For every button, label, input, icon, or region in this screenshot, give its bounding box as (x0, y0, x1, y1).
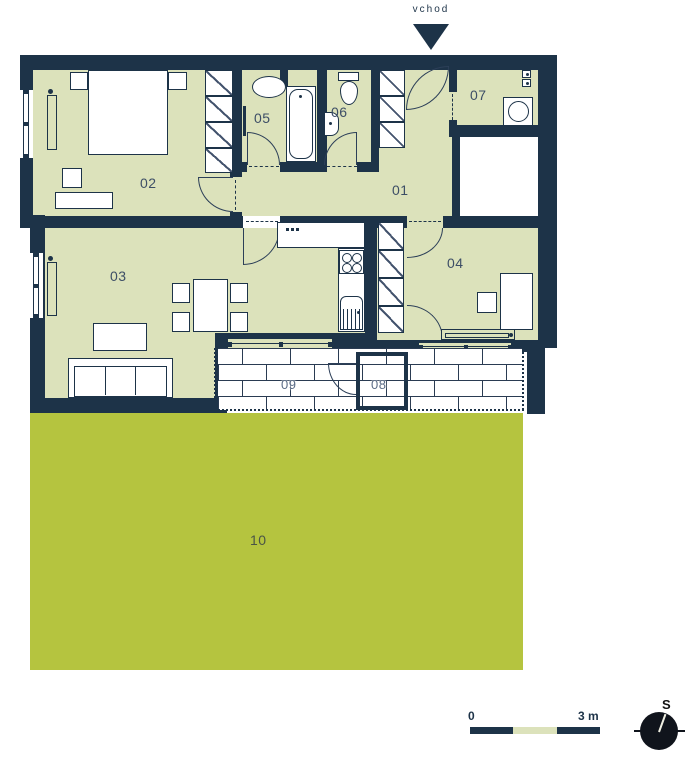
washbasin (252, 76, 286, 98)
wardrobe (379, 122, 405, 148)
wardrobe (205, 96, 233, 122)
entrance-door-threshold (406, 62, 449, 63)
toilet-tank (338, 72, 359, 81)
wardrobe (205, 122, 233, 148)
entrance-arrow-icon (413, 24, 449, 50)
radiator (47, 262, 57, 316)
room-label-10: 10 (250, 532, 267, 548)
wardrobe (379, 70, 405, 96)
wardrobe (378, 278, 404, 306)
kitchen-sink-unit (340, 296, 363, 330)
room-label-02: 02 (140, 175, 157, 191)
chair (230, 283, 248, 303)
terrace-border (214, 348, 216, 410)
sofa (68, 358, 173, 398)
scale-end-label: 3 m (578, 709, 599, 723)
door-threshold (452, 94, 453, 120)
wall (443, 216, 538, 228)
nightstand (168, 72, 187, 90)
door-threshold (249, 166, 279, 167)
adjacent-white-area (460, 137, 538, 216)
window (20, 90, 33, 158)
wall (20, 216, 243, 228)
wardrobe (378, 250, 404, 278)
utility-meter (522, 70, 531, 78)
room-label-01: 01 (392, 182, 409, 198)
wall (30, 398, 220, 413)
room-label-09: 09 (281, 377, 296, 392)
door-threshold (235, 180, 236, 210)
wall (527, 345, 545, 414)
washing-machine (503, 97, 533, 126)
chair (172, 283, 190, 303)
room-label-04: 04 (447, 255, 464, 271)
wall (452, 137, 460, 216)
chair (172, 312, 190, 332)
wall (449, 125, 538, 137)
garden (30, 413, 523, 670)
radiator-valve (48, 256, 53, 261)
towel-rail (243, 106, 246, 136)
room-label-08: 08 (371, 377, 386, 392)
wall (449, 55, 457, 92)
wardrobe (379, 96, 405, 122)
room-label-06: 06 (331, 104, 348, 120)
wardrobe (205, 70, 233, 96)
room-label-05: 05 (254, 110, 271, 126)
side-table (477, 292, 497, 313)
bathtub (286, 86, 316, 162)
room-label-03: 03 (110, 268, 127, 284)
radiator (47, 95, 57, 150)
scale-start-label: 0 (468, 709, 475, 723)
counter-detail (286, 228, 289, 231)
door-threshold (246, 221, 278, 222)
chair (230, 312, 248, 332)
wall (20, 55, 557, 70)
wall (230, 212, 242, 228)
chair (62, 168, 82, 188)
radiator-valve (48, 89, 53, 94)
wardrobe (378, 222, 404, 250)
door-threshold (409, 221, 441, 222)
room-label-07: 07 (470, 87, 487, 103)
desk (55, 192, 113, 209)
single-bed (500, 273, 533, 330)
nightstand (70, 72, 88, 90)
wall (371, 70, 379, 172)
stove (339, 250, 364, 274)
wall (280, 162, 327, 172)
terrace-border (522, 348, 524, 410)
kitchen-counter (277, 222, 365, 248)
compass-icon (634, 708, 684, 756)
wall (538, 70, 557, 348)
entrance-label: vchod (401, 4, 461, 15)
wall (365, 216, 377, 352)
window (30, 253, 43, 318)
utility-meter (522, 79, 531, 87)
wardrobe (378, 306, 404, 333)
counter-detail (296, 228, 299, 231)
double-bed (88, 70, 168, 155)
floor-plan: vchod (0, 0, 690, 757)
counter-detail (291, 228, 294, 231)
wardrobe (205, 148, 233, 173)
door-threshold (327, 166, 357, 167)
coffee-table (93, 323, 147, 351)
dining-table (193, 279, 228, 332)
radiator (441, 329, 515, 340)
scale-bar (470, 727, 600, 734)
